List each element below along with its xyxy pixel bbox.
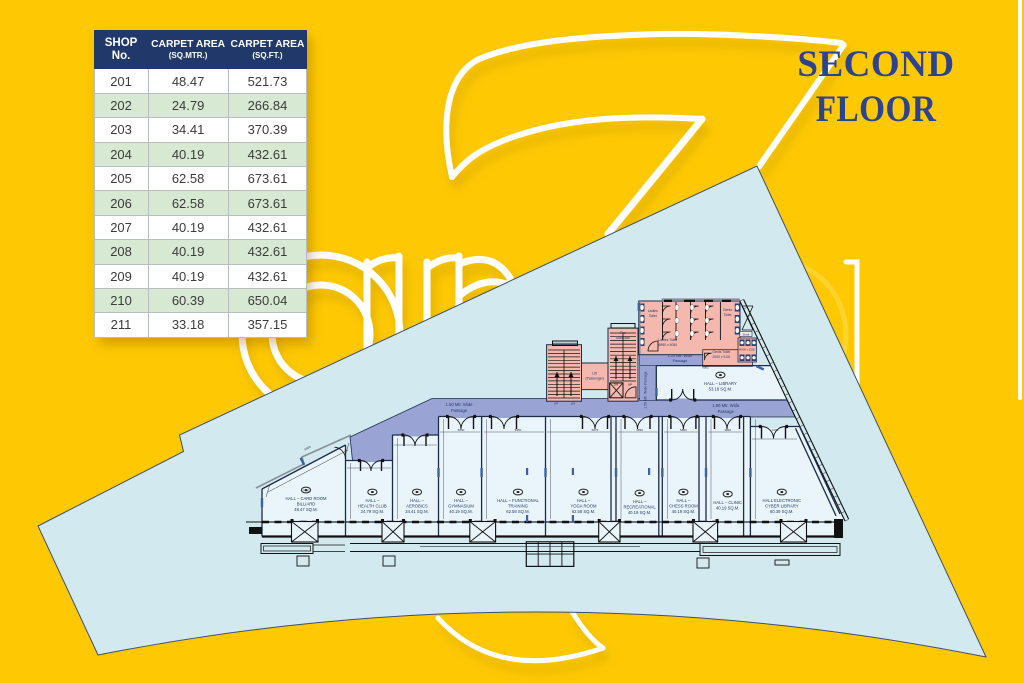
- svg-text:AEROBICS: AEROBICS: [406, 504, 428, 509]
- svg-text:UP: UP: [628, 383, 632, 387]
- svg-text:62.58 SQ.M.: 62.58 SQ.M.: [506, 509, 530, 514]
- svg-text:1.90 Mtr. Wide: 1.90 Mtr. Wide: [712, 403, 740, 408]
- svg-text:RECREATIONAL: RECREATIONAL: [623, 505, 656, 510]
- svg-text:HALL –: HALL –: [410, 498, 424, 503]
- svg-text:HALL ELECTRONIC: HALL ELECTRONIC: [763, 498, 801, 503]
- svg-text:40.19 SQ.M.: 40.19 SQ.M.: [449, 509, 473, 514]
- svg-text:HALL –: HALL –: [633, 499, 647, 504]
- svg-text:Toilet: Toilet: [649, 314, 657, 318]
- svg-text:3850: 3850: [724, 428, 731, 432]
- svg-text:HALL –: HALL –: [365, 498, 379, 503]
- svg-text:Fire: Fire: [620, 331, 626, 335]
- svg-text:Staircase: Staircase: [616, 336, 630, 340]
- svg-text:62.58 SQ.M.: 62.58 SQ.M.: [572, 509, 596, 514]
- svg-text:Passage: Passage: [718, 409, 735, 414]
- svg-text:HALL –: HALL –: [676, 498, 690, 503]
- svg-text:60.39 SQ.M.: 60.39 SQ.M.: [770, 509, 794, 514]
- svg-text:HALL – CLINIC: HALL – CLINIC: [713, 500, 742, 505]
- svg-text:Gents Toilet: Gents Toilet: [712, 350, 730, 354]
- svg-text:5950: 5950: [515, 428, 522, 432]
- svg-text:5850: 5850: [458, 428, 465, 432]
- svg-text:1.50 Mtr. Wide Passage: 1.50 Mtr. Wide Passage: [644, 371, 648, 408]
- svg-text:1.50 Mtr. Wide: 1.50 Mtr. Wide: [446, 402, 474, 407]
- svg-text:40.19 SQ.M.: 40.19 SQ.M.: [672, 509, 696, 514]
- svg-text:2000 x 5.00: 2000 x 5.00: [712, 355, 730, 359]
- svg-text:HALL –: HALL –: [454, 498, 468, 503]
- svg-text:Ladies: Ladies: [648, 309, 658, 313]
- svg-text:40.19 SQ.M.: 40.19 SQ.M.: [716, 506, 740, 511]
- svg-text:CYBER LIBRARY: CYBER LIBRARY: [765, 504, 799, 509]
- svg-text:24.79 SQ.M.: 24.79 SQ.M.: [361, 509, 385, 514]
- svg-text:9001: 9001: [702, 365, 709, 369]
- svg-text:Shaft: Shaft: [742, 333, 749, 337]
- svg-text:6950 x 4050: 6950 x 4050: [658, 343, 677, 347]
- svg-text:HALL – CARD ROOM: HALL – CARD ROOM: [285, 496, 327, 501]
- svg-text:7600: 7600: [303, 489, 310, 493]
- svg-text:DN: DN: [571, 402, 575, 406]
- svg-text:Passage: Passage: [673, 359, 688, 363]
- svg-text:5850: 5850: [680, 428, 687, 432]
- svg-text:HALL –: HALL –: [577, 498, 591, 503]
- svg-text:5675: 5675: [592, 428, 599, 432]
- svg-text:4200: 4200: [772, 428, 779, 432]
- svg-text:YOGA ROOM: YOGA ROOM: [570, 504, 597, 509]
- svg-text:Lift: Lift: [592, 372, 597, 376]
- svg-text:UP: UP: [554, 402, 558, 406]
- svg-text:40.19 SQ.M.: 40.19 SQ.M.: [628, 510, 652, 515]
- svg-text:CHESS ROOM: CHESS ROOM: [669, 504, 698, 509]
- svg-text:(Passenger): (Passenger): [585, 377, 603, 381]
- svg-text:DN: DN: [614, 383, 618, 387]
- svg-text:Ladies Toilet: Ladies Toilet: [658, 338, 677, 342]
- svg-text:M500 x 2200: M500 x 2200: [739, 348, 756, 352]
- svg-text:BILLIARD: BILLIARD: [297, 502, 316, 507]
- svg-text:Toilet: Toilet: [724, 313, 732, 317]
- svg-text:53.18 SQ.M.: 53.18 SQ.M.: [709, 387, 733, 392]
- svg-text:3850: 3850: [636, 428, 643, 432]
- svg-text:1.20 Mtr. Wide: 1.20 Mtr. Wide: [668, 354, 692, 358]
- svg-text:GYMNASIUM: GYMNASIUM: [448, 504, 474, 509]
- svg-text:48.47 SQ.M.: 48.47 SQ.M.: [294, 507, 318, 512]
- svg-text:34.41 SQ.M.: 34.41 SQ.M.: [405, 509, 429, 514]
- svg-text:HEALTH CLUB: HEALTH CLUB: [358, 504, 387, 509]
- svg-text:HALL – LIBRARY: HALL – LIBRARY: [704, 381, 737, 386]
- svg-text:HALL – FUNCTIONAL: HALL – FUNCTIONAL: [497, 498, 539, 503]
- svg-text:TRAINING: TRAINING: [508, 504, 528, 509]
- svg-text:Gents: Gents: [723, 308, 732, 312]
- svg-text:Passage: Passage: [451, 408, 468, 413]
